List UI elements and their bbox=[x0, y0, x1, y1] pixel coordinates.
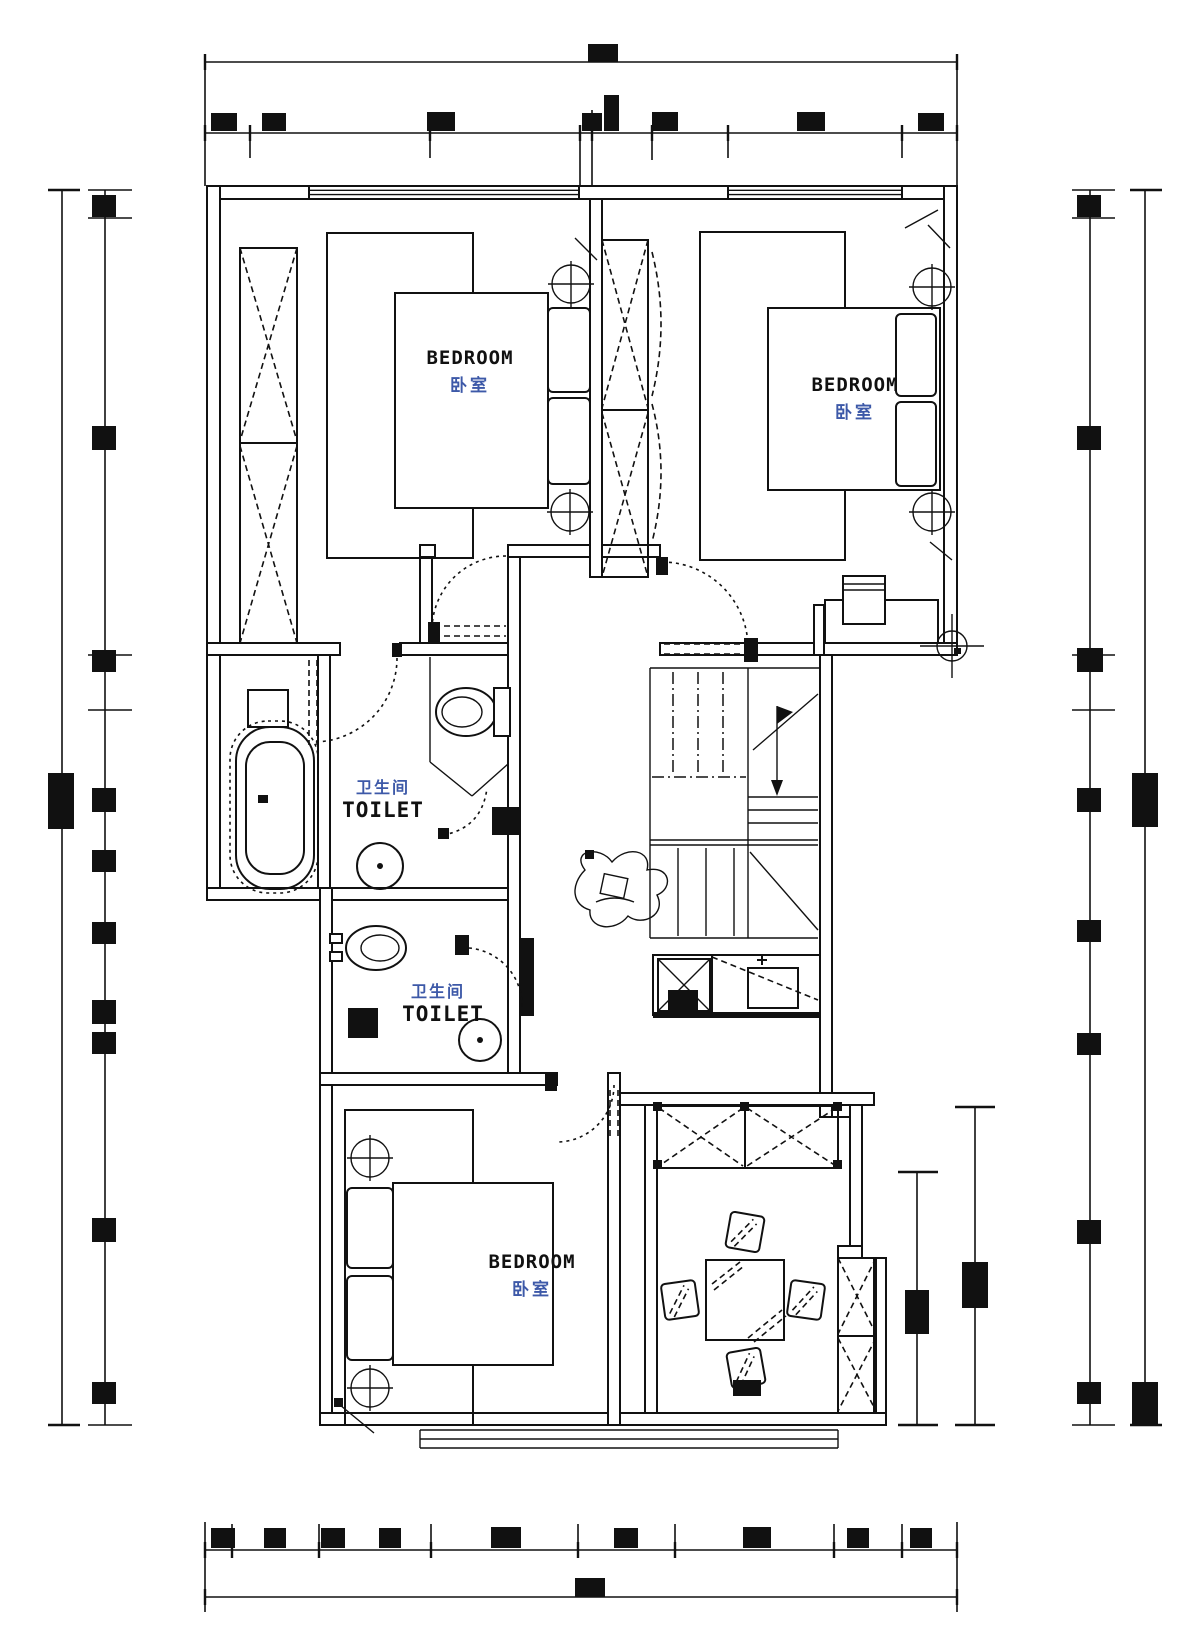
bedroom-top-right-furniture bbox=[700, 232, 984, 678]
s ink-icon bbox=[357, 843, 403, 889]
bed-symbol bbox=[393, 1183, 553, 1365]
pillow-symbol bbox=[347, 1188, 393, 1268]
toilet-upper-label-zh: 卫生间 bbox=[356, 778, 410, 797]
downlight-icon bbox=[347, 1135, 393, 1181]
bedroom-top-left-label-zh: 卧室 bbox=[450, 375, 490, 396]
toilet-lower-label-en: TOILET bbox=[402, 1002, 484, 1026]
bedroom-bottom-label-zh: 卧室 bbox=[512, 1279, 552, 1300]
downlight-icon bbox=[547, 489, 593, 535]
wardrobe-icon-dining-top bbox=[653, 1102, 842, 1169]
chair-symbol bbox=[661, 1280, 700, 1320]
downlight-icon bbox=[347, 1365, 393, 1411]
pillow-symbol bbox=[548, 398, 590, 484]
bedroom-bottom-label-en: BEDROOM bbox=[488, 1251, 575, 1273]
toilet-icon bbox=[430, 657, 510, 796]
pillow-symbol bbox=[896, 314, 936, 396]
floor-plan: BEDROOM 卧室 BEDROOM 卧室 卫生间 TOILET 卫生间 TOI… bbox=[0, 0, 1200, 1631]
toilet-upper-label-en: TOILET bbox=[342, 798, 424, 822]
bedroom-top-right-label-zh: 卧室 bbox=[835, 402, 875, 423]
toilet-lower-label-zh: 卫生间 bbox=[411, 982, 465, 1001]
sink-icon bbox=[330, 926, 406, 970]
dimension-lines-top bbox=[205, 44, 957, 186]
dimension-lines-right bbox=[1072, 190, 1162, 1426]
chair-symbol bbox=[843, 576, 885, 624]
wardrobe-icon-bedroom1-left bbox=[240, 248, 297, 643]
pillow-symbol bbox=[347, 1276, 393, 1360]
stairs-symbol bbox=[650, 668, 820, 938]
bathtub-icon bbox=[230, 721, 318, 893]
wardrobe-icon-dining-right bbox=[838, 1258, 876, 1413]
terrace-edge-lines bbox=[420, 1430, 838, 1448]
shower-drain-symbol bbox=[348, 1008, 378, 1038]
stair-direction-arrow bbox=[771, 706, 793, 796]
window-icon bbox=[309, 186, 579, 199]
dimension-lines-left bbox=[48, 190, 132, 1425]
dining-furniture bbox=[661, 1211, 826, 1396]
wardrobe-icon-between-bedrooms bbox=[602, 240, 661, 577]
downlight-icon bbox=[548, 261, 594, 307]
door-bedroom-top-left bbox=[428, 556, 506, 642]
bedroom-top-right-label-en: BEDROOM bbox=[811, 374, 898, 396]
toilet-upper-fixtures bbox=[230, 657, 510, 893]
dimension-lines-bottom bbox=[205, 1522, 957, 1612]
bedroom-top-left-label-en: BEDROOM bbox=[426, 347, 513, 369]
plant-icon bbox=[575, 850, 667, 927]
pillow-symbol bbox=[896, 402, 936, 486]
pillow-symbol bbox=[548, 308, 590, 392]
chair-symbol bbox=[725, 1211, 765, 1252]
dimension-lines-bottom-right-partial bbox=[898, 1107, 995, 1425]
window-icon bbox=[728, 186, 902, 199]
cabinet-symbols-understair bbox=[653, 955, 820, 1018]
chair-symbol bbox=[787, 1280, 826, 1320]
bed-symbol bbox=[395, 293, 548, 508]
